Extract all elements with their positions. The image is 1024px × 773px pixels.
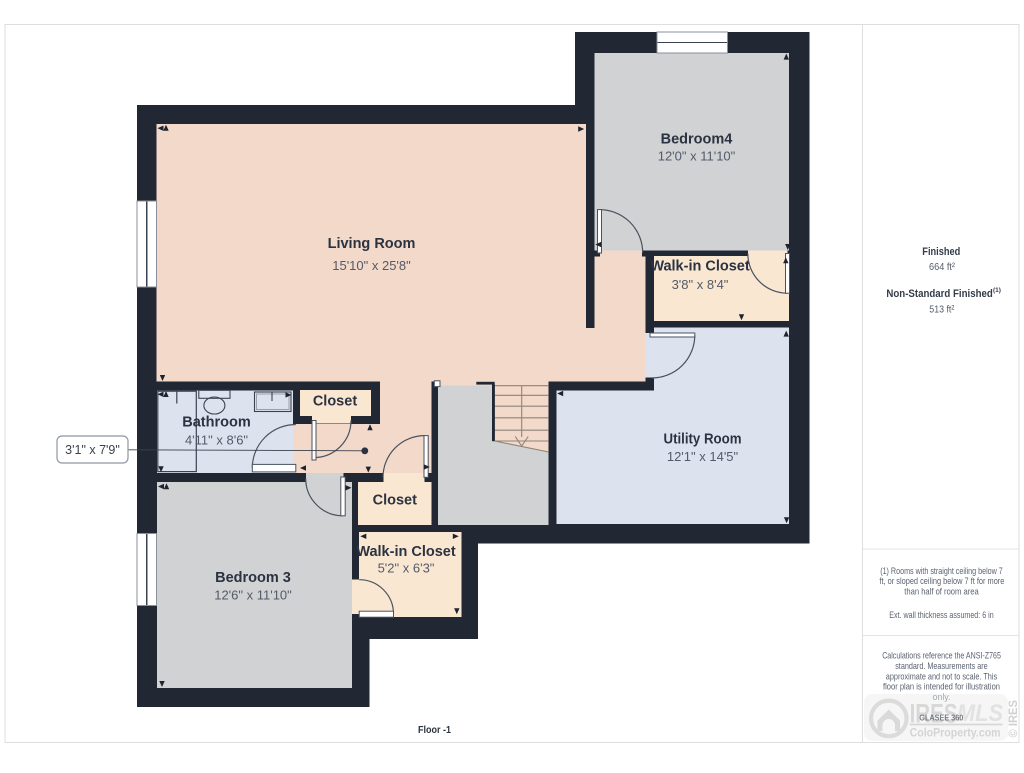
svg-text:3'8" x 8'4": 3'8" x 8'4" <box>672 277 729 292</box>
svg-text:MLS: MLS <box>957 700 1003 727</box>
svg-text:ColoProperty.com: ColoProperty.com <box>910 725 1001 739</box>
svg-text:Calculations reference the ANS: Calculations reference the ANSI-Z765 <box>882 651 1001 661</box>
svg-text:Utility Room: Utility Room <box>664 432 742 448</box>
svg-text:Non-Standard Finished: Non-Standard Finished <box>886 288 992 300</box>
svg-text:(1): (1) <box>993 287 1001 294</box>
svg-text:GLASEE 360: GLASEE 360 <box>919 713 963 723</box>
svg-text:Floor -1: Floor -1 <box>418 724 451 736</box>
svg-text:ft, or sloped ceiling below 7: ft, or sloped ceiling below 7 ft for mor… <box>879 576 1004 586</box>
svg-text:Bathroom: Bathroom <box>182 415 250 431</box>
svg-text:Living Room: Living Room <box>328 236 416 252</box>
svg-text:513 ft²: 513 ft² <box>929 304 954 315</box>
svg-text:approximate and not to scale.: approximate and not to scale. This <box>886 671 998 681</box>
svg-text:Walk-in Closet: Walk-in Closet <box>650 259 750 275</box>
svg-text:664 ft²: 664 ft² <box>929 262 955 273</box>
svg-text:4'11" x 8'6": 4'11" x 8'6" <box>185 433 248 448</box>
svg-text:12'6" x 11'10": 12'6" x 11'10" <box>214 588 292 603</box>
svg-text:12'1" x 14'5": 12'1" x 14'5" <box>667 449 739 464</box>
svg-text:© IRES: © IRES <box>1008 700 1020 738</box>
svg-text:Bedroom4: Bedroom4 <box>661 132 733 148</box>
svg-text:Finished: Finished <box>922 246 960 258</box>
svg-text:Ext. wall thickness assumed: 6: Ext. wall thickness assumed: 6 in <box>889 610 993 620</box>
svg-text:Closet: Closet <box>313 394 357 410</box>
svg-text:15'10" x 25'8": 15'10" x 25'8" <box>332 258 411 273</box>
svg-text:3'1" x 7'9": 3'1" x 7'9" <box>65 443 120 457</box>
svg-text:floor plan is intended for ill: floor plan is intended for illustration <box>883 682 1000 692</box>
svg-text:Bedroom 3: Bedroom 3 <box>215 570 291 586</box>
svg-text:5'2" x 6'3": 5'2" x 6'3" <box>378 561 435 576</box>
svg-text:12'0" x 11'10": 12'0" x 11'10" <box>658 149 736 164</box>
svg-text:than half of room area: than half of room area <box>904 587 979 597</box>
svg-text:Walk-in Closet: Walk-in Closet <box>356 544 456 560</box>
svg-text:Closet: Closet <box>373 492 417 508</box>
svg-text:standard. Measurements are: standard. Measurements are <box>895 661 988 671</box>
svg-text:(1) Rooms with straight ceilin: (1) Rooms with straight ceiling below 7 <box>880 566 1003 576</box>
